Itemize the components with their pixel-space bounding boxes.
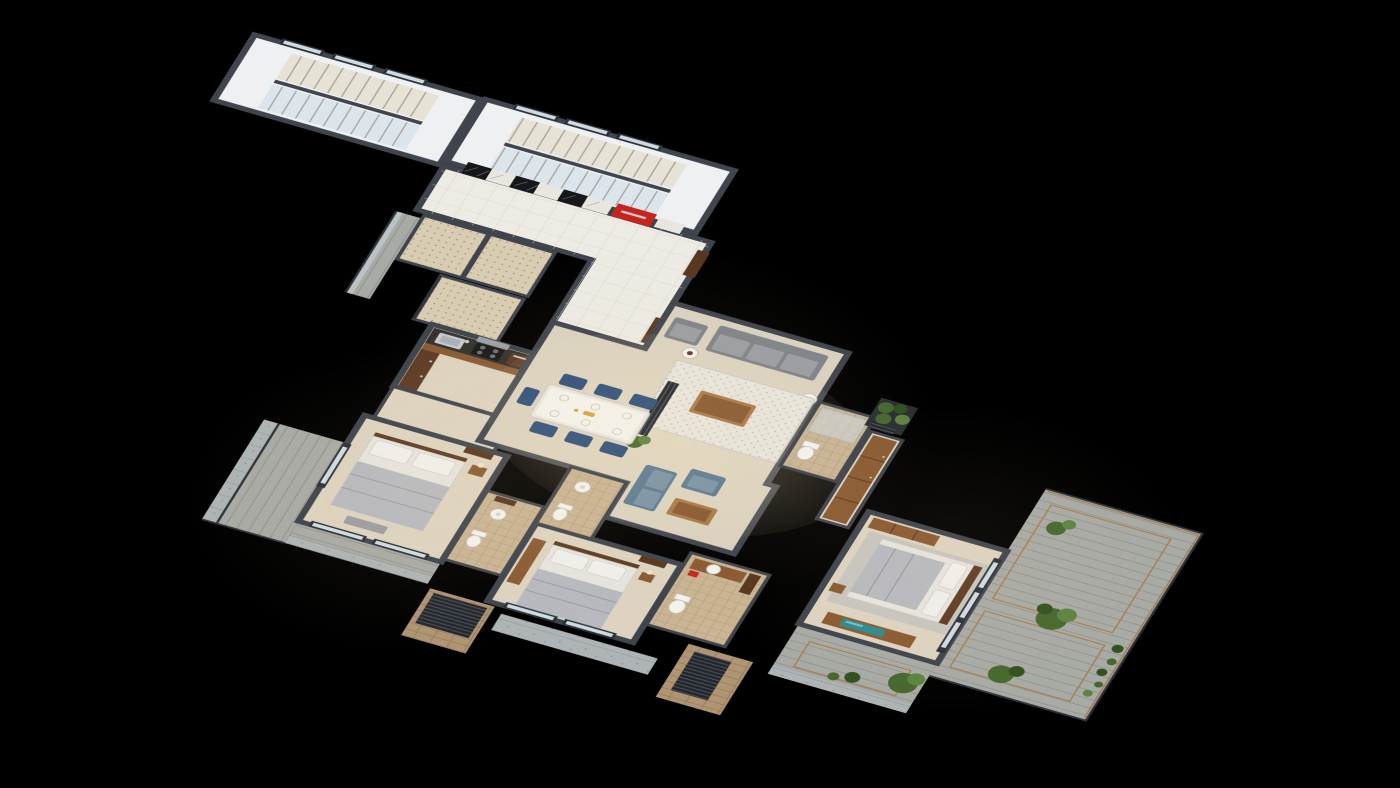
louver-shaft-1 (401, 588, 495, 653)
louver-shaft-2 (656, 644, 754, 715)
isometric-floor-plan (0, 17, 1400, 788)
staircase-west (214, 31, 483, 165)
floor-plan-svg (0, 17, 1400, 788)
render-stage (0, 0, 1400, 788)
